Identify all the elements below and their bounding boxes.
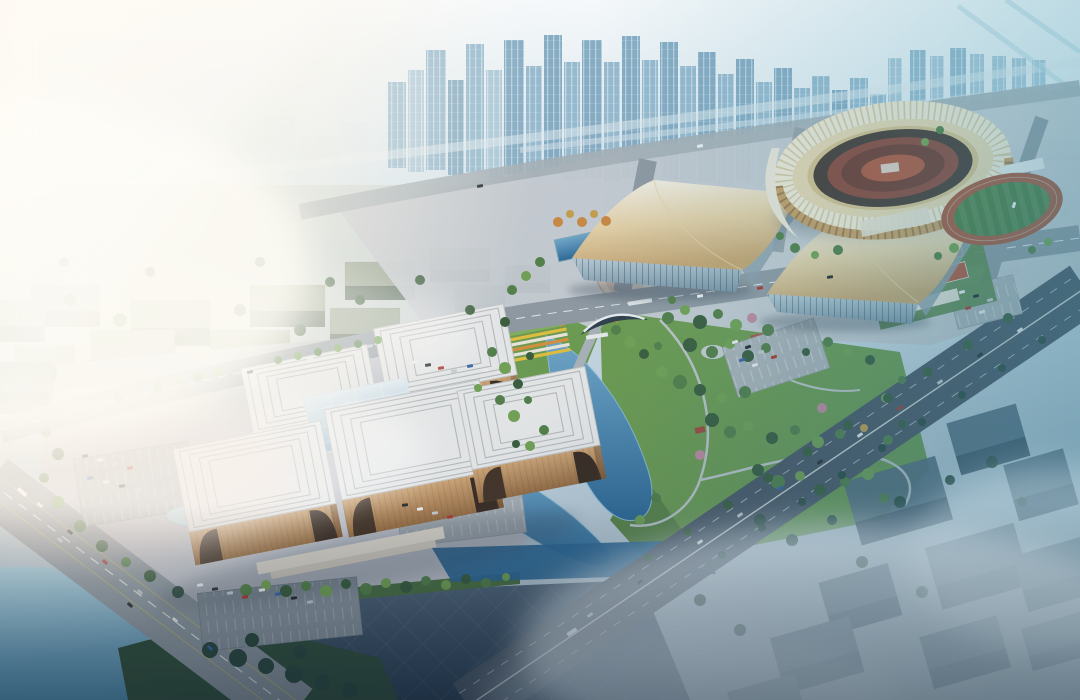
atmosphere-overlays bbox=[0, 0, 1080, 700]
aerial-rendering bbox=[0, 0, 1080, 700]
aerial-rendering-stage bbox=[0, 0, 1080, 700]
bottom-vignette bbox=[0, 0, 1080, 700]
